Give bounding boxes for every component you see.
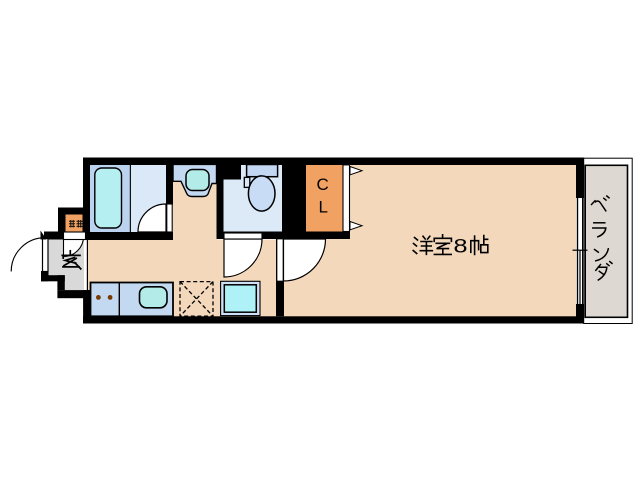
svg-text:C: C bbox=[317, 175, 329, 194]
svg-text:L: L bbox=[319, 198, 328, 217]
svg-text:8: 8 bbox=[454, 237, 468, 258]
